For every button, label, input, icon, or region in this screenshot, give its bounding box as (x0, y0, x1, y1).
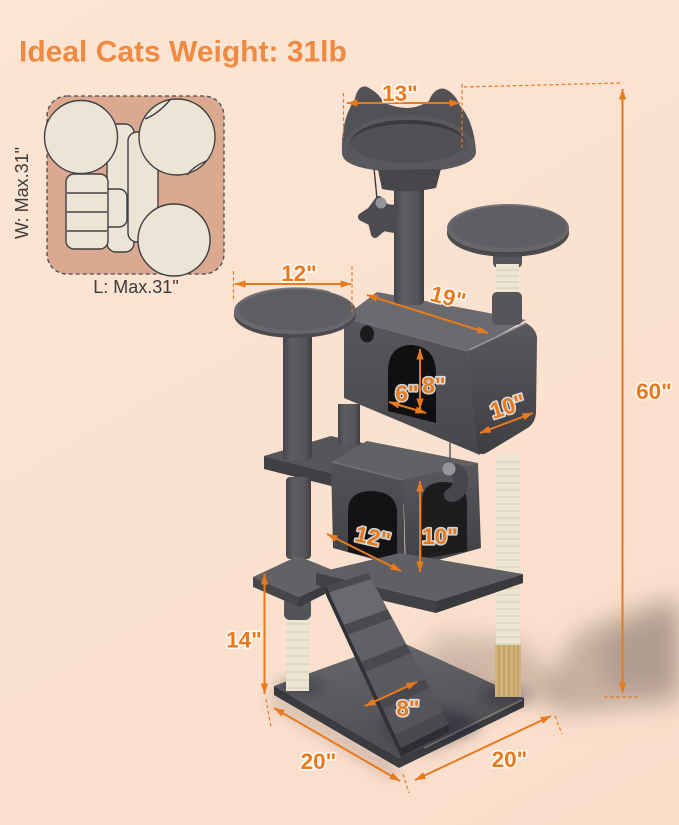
svg-text:Ideal Cats Weight: 31lb: Ideal Cats Weight: 31lb (19, 36, 347, 69)
svg-text:8": 8" (422, 373, 445, 398)
svg-text:W: Max.31": W: Max.31" (12, 147, 32, 239)
svg-text:12": 12" (281, 261, 317, 286)
svg-text:L: Max.31": L: Max.31" (93, 277, 178, 297)
svg-text:13": 13" (382, 81, 418, 106)
svg-text:60": 60" (636, 379, 672, 404)
svg-text:14": 14" (226, 628, 262, 653)
svg-text:10": 10" (422, 524, 458, 549)
svg-text:20": 20" (492, 747, 528, 772)
svg-text:6": 6" (395, 381, 418, 406)
svg-text:20": 20" (301, 749, 337, 774)
svg-text:8": 8" (396, 696, 419, 721)
